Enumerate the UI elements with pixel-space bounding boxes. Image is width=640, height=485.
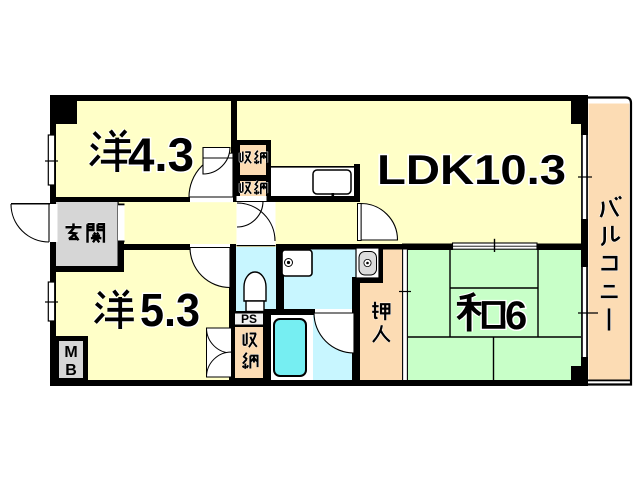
svg-text:6: 6: [505, 294, 527, 338]
svg-text:PS: PS: [241, 312, 257, 326]
svg-text:5.3: 5.3: [140, 284, 200, 336]
svg-text:LDK10.3: LDK10.3: [377, 146, 566, 193]
svg-text:B: B: [65, 362, 77, 379]
svg-text:4.3: 4.3: [128, 128, 194, 181]
svg-text:M: M: [64, 344, 77, 361]
